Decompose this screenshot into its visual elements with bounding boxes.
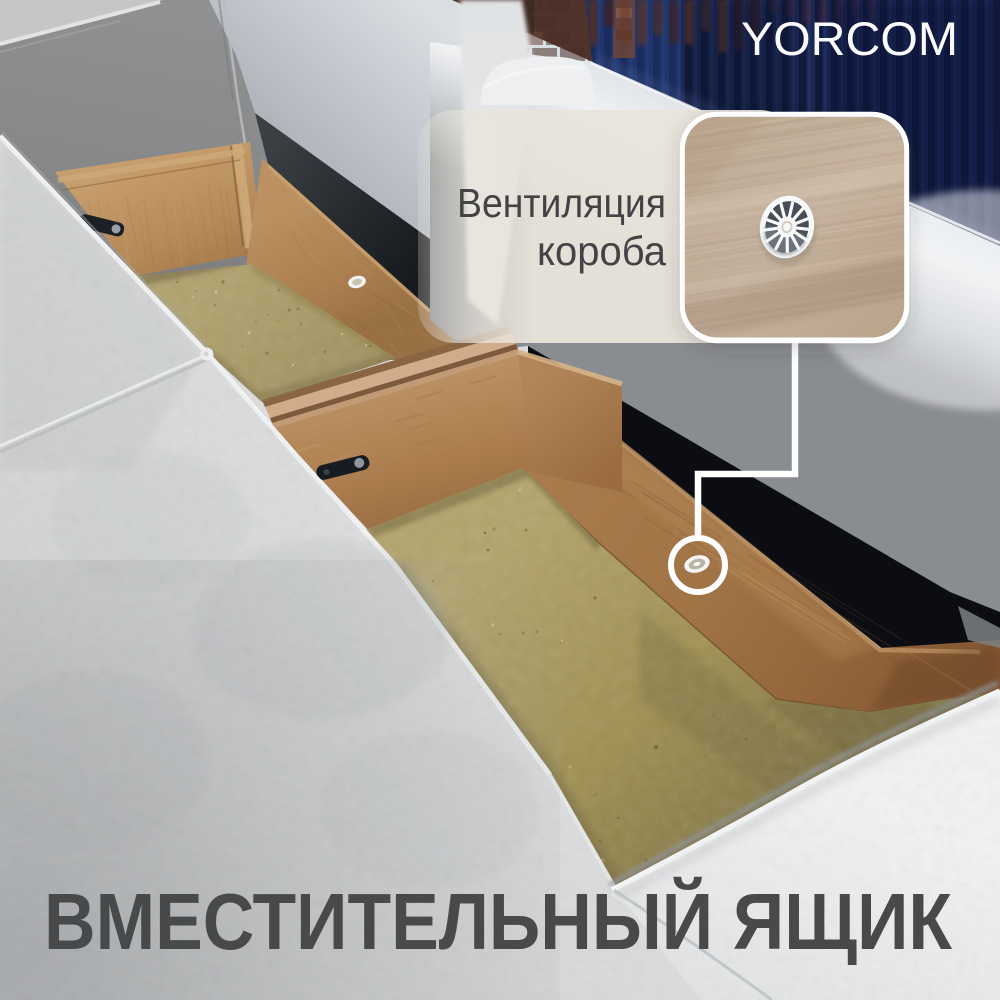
svg-text:короба: короба [537, 228, 666, 274]
svg-text:ВМЕСТИТЕЛЬНЫЙ ЯЩИК: ВМЕСТИТЕЛЬНЫЙ ЯЩИК [44, 876, 952, 966]
svg-text:YORCOM: YORCOM [741, 12, 958, 65]
svg-text:Вентиляция: Вентиляция [457, 180, 666, 226]
